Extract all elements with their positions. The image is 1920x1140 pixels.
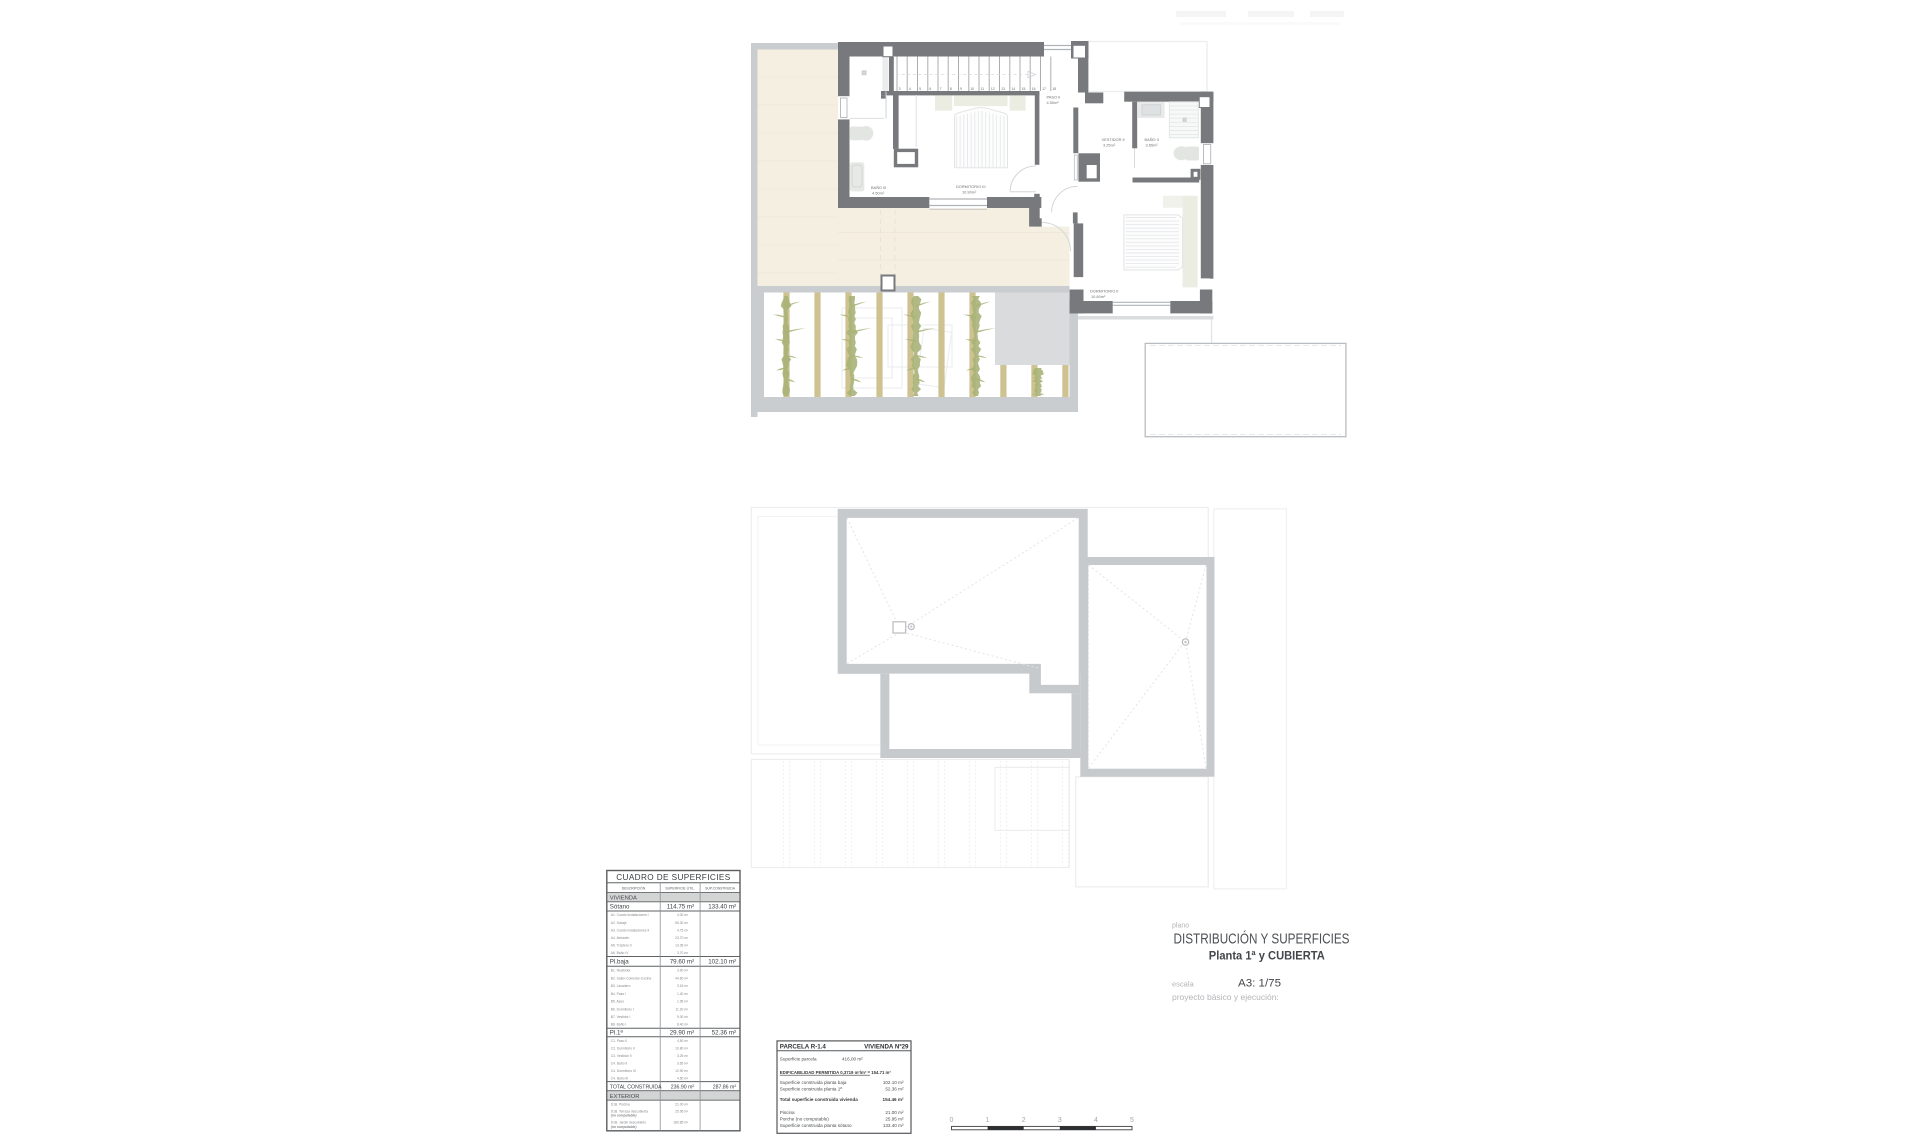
svg-text:13.35 m²: 13.35 m² [675,944,689,948]
svg-text:Piscina: Piscina [780,1110,795,1115]
svg-text:1.95 m²: 1.95 m² [677,1000,689,1004]
svg-text:EDIFICABILIDAD PERMITIDA 0,37: EDIFICABILIDAD PERMITIDA 0,3719 m²/m² = … [780,1070,892,1075]
svg-text:21.00 m²: 21.00 m² [885,1110,904,1115]
svg-text:Superficie construida planta s: Superficie construida planta sótano [780,1123,852,1128]
svg-text:5: 5 [1130,1117,1134,1124]
svg-text:29.90 m²: 29.90 m² [670,1030,694,1037]
svg-text:3.70 m²: 3.70 m² [677,951,689,955]
svg-text:escala: escala [1172,979,1195,988]
svg-text:9: 9 [960,87,962,91]
svg-text:3.90 m²: 3.90 m² [677,969,689,973]
svg-text:C2. Dormitorio II: C2. Dormitorio II [611,1046,635,1050]
svg-text:DESCRIPCIÓN: DESCRIPCIÓN [622,885,646,890]
svg-text:3.65 m²: 3.65 m² [677,1061,689,1065]
svg-text:5: 5 [919,87,921,91]
svg-text:6: 6 [929,87,931,91]
svg-text:Superficie construida planta b: Superficie construida planta baja [780,1080,847,1085]
svg-text:133.40 m²: 133.40 m² [708,904,736,911]
svg-text:DISTRIBUCIÓN Y SUPERFICIES: DISTRIBUCIÓN Y SUPERFICIES [1174,931,1350,948]
svg-text:154.46 m²: 154.46 m² [883,1097,904,1102]
svg-text:2: 2 [1022,1117,1026,1124]
svg-text:16: 16 [1032,87,1036,91]
svg-text:4.50m²: 4.50m² [872,191,885,196]
svg-text:A1. Cuarto Instalaciones I: A1. Cuarto Instalaciones I [611,913,649,917]
svg-text:BAÑO III: BAÑO III [871,185,886,190]
svg-text:B3. Lavadero: B3. Lavadero [611,984,631,988]
svg-text:DORMITORIO II: DORMITORIO II [1090,289,1118,294]
svg-text:3.25m²: 3.25m² [1103,143,1116,148]
svg-text:Pl.baja: Pl.baja [610,959,629,966]
svg-text:4.75 m²: 4.75 m² [677,928,689,932]
svg-text:4.50 m²: 4.50 m² [677,1039,689,1043]
svg-text:B5. Aseo: B5. Aseo [611,1000,624,1004]
svg-text:B8. Baño I: B8. Baño I [611,1023,626,1027]
svg-text:11: 11 [981,87,985,91]
svg-text:8.40 m²: 8.40 m² [677,1023,689,1027]
svg-text:DORMITORIO III: DORMITORIO III [956,184,986,189]
svg-text:C4. Dormitorio III: C4. Dormitorio III [611,1069,636,1073]
svg-text:4.50 m²: 4.50 m² [677,1076,689,1080]
svg-text:A3. Cuarto instalaciones II: A3. Cuarto instalaciones II [611,928,650,932]
svg-text:10.80m²: 10.80m² [1091,294,1106,299]
svg-text:10.80 m²: 10.80 m² [675,1046,689,1050]
svg-text:B6. Dormitorio I: B6. Dormitorio I [611,1007,634,1011]
svg-text:3: 3 [899,87,901,91]
svg-text:236.90 m²: 236.90 m² [671,1084,695,1090]
svg-text:A6. Baño IV: A6. Baño IV [611,951,629,955]
svg-text:21.00 m²: 21.00 m² [675,1103,689,1107]
svg-text:SUP.CONSTRUIDA: SUP.CONSTRUIDA [705,886,736,890]
svg-text:Total superficie construida vi: Total superficie construida vivienda [780,1097,858,1102]
svg-text:VIVIENDA Nº29: VIVIENDA Nº29 [864,1043,909,1050]
svg-text:B2. Salón-Comedor-Cocina: B2. Salón-Comedor-Cocina [611,976,651,980]
svg-text:10: 10 [970,87,974,91]
svg-text:CUADRO DE SUPERFICIES: CUADRO DE SUPERFICIES [616,873,731,882]
svg-text:(no computable): (no computable) [611,1125,637,1129]
svg-text:4: 4 [909,87,911,91]
svg-text:TOTAL CONSTRUIDA: TOTAL CONSTRUIDA [610,1084,662,1090]
svg-text:25.95 m²: 25.95 m² [885,1117,904,1122]
svg-text:52.36 m²: 52.36 m² [712,1030,736,1037]
svg-text:15: 15 [1022,87,1026,91]
svg-text:5.00 m²: 5.00 m² [677,1015,689,1019]
svg-text:3.25 m²: 3.25 m² [677,1054,689,1058]
svg-text:PARCELA R-1.4: PARCELA R-1.4 [780,1043,827,1050]
svg-text:25.95 m²: 25.95 m² [675,1109,689,1113]
svg-text:B1. Recibidor: B1. Recibidor [611,969,632,973]
svg-text:B7. Vestidor I: B7. Vestidor I [611,1015,631,1019]
svg-text:Sótano: Sótano [610,904,630,911]
svg-text:79.60 m²: 79.60 m² [670,959,694,966]
svg-text:18: 18 [1052,87,1056,91]
svg-text:11.20 m²: 11.20 m² [675,1007,689,1011]
svg-text:7: 7 [940,87,942,91]
svg-text:14: 14 [1011,87,1015,91]
svg-text:BAÑO II: BAÑO II [1145,137,1159,142]
svg-text:C1. Paso II: C1. Paso II [611,1039,627,1043]
svg-text:A4. Almacén: A4. Almacén [611,936,630,940]
svg-text:133.40 m²: 133.40 m² [883,1123,904,1128]
svg-text:EXTERIOR: EXTERIOR [610,1094,640,1100]
svg-text:416,00 m²: 416,00 m² [842,1057,863,1062]
svg-text:12: 12 [991,87,995,91]
svg-text:B4. Paso I: B4. Paso I [611,992,626,996]
svg-text:VESTIDOR II: VESTIDOR II [1102,137,1125,142]
svg-text:1.40 m²: 1.40 m² [677,992,689,996]
svg-text:Porche (no computable): Porche (no computable) [780,1117,829,1122]
svg-text:102.10 m²: 102.10 m² [883,1080,904,1085]
svg-text:65.30 m²: 65.30 m² [675,921,689,925]
svg-text:VIVIENDA: VIVIENDA [610,896,637,902]
svg-text:3: 3 [1058,1117,1062,1124]
svg-text:Superficie parcela: Superficie parcela [780,1057,817,1062]
svg-text:A3: 1/75: A3: 1/75 [1238,977,1281,989]
svg-text:52.36 m²: 52.36 m² [885,1087,904,1092]
svg-text:A2. Garaje: A2. Garaje [611,921,627,925]
svg-text:D1B. Piscina: D1B. Piscina [611,1103,630,1107]
svg-text:3.15 m²: 3.15 m² [677,984,689,988]
svg-text:10.90 m²: 10.90 m² [675,1069,689,1073]
svg-text:(no computable): (no computable) [611,1114,637,1118]
svg-text:PASO II: PASO II [1047,95,1061,100]
svg-text:0: 0 [950,1117,954,1124]
svg-text:44.60 m²: 44.60 m² [675,976,689,980]
svg-text:13: 13 [1001,87,1005,91]
svg-text:4.00 m²: 4.00 m² [677,913,689,917]
svg-text:Pl.1ª: Pl.1ª [610,1030,624,1037]
svg-text:17: 17 [1042,87,1046,91]
svg-text:C3. Vestidor II: C3. Vestidor II [611,1054,632,1058]
svg-text:C4. Baño III: C4. Baño III [611,1076,628,1080]
svg-text:180.85 m²: 180.85 m² [673,1121,689,1125]
svg-text:SUPERFICIE ÚTIL.: SUPERFICIE ÚTIL. [665,885,695,890]
svg-text:102.10 m²: 102.10 m² [708,959,736,966]
svg-text:1: 1 [986,1117,990,1124]
svg-text:Planta 1ª y CUBIERTA: Planta 1ª y CUBIERTA [1209,949,1325,963]
svg-text:4.50m²: 4.50m² [1047,100,1060,105]
svg-text:proyecto básico y ejecución:: proyecto básico y ejecución: [1172,992,1279,1002]
svg-text:287.86 m²: 287.86 m² [713,1084,737,1090]
svg-text:C4. Baño II: C4. Baño II [611,1061,628,1065]
svg-text:10.90m²: 10.90m² [962,190,977,195]
svg-text:23.70 m²: 23.70 m² [675,936,689,940]
svg-text:Superficie construida planta 1: Superficie construida planta 1ª [780,1087,843,1092]
svg-text:114.75 m²: 114.75 m² [667,904,694,911]
svg-text:8: 8 [950,87,952,91]
svg-text:4: 4 [1094,1117,1098,1124]
svg-text:plano: plano [1172,923,1189,930]
svg-text:A5. Trastero II: A5. Trastero II [611,944,632,948]
svg-text:3.65m²: 3.65m² [1146,143,1159,148]
